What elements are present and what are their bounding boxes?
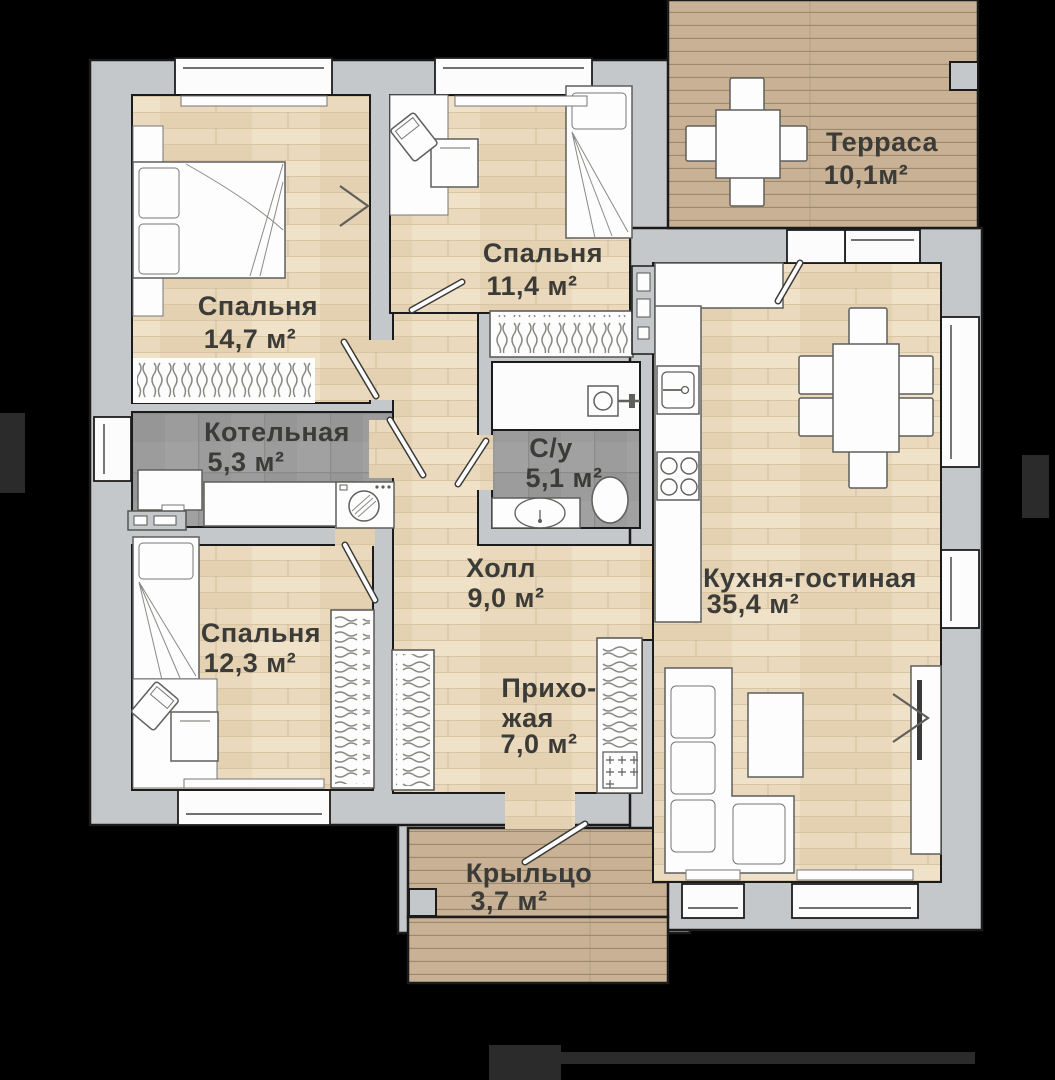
coffee-table-icon (748, 693, 803, 777)
desk-icon (431, 139, 478, 187)
radiator (181, 96, 327, 106)
window (682, 884, 744, 918)
room-area: 35,4 м² (707, 589, 800, 619)
room-name: Спальня (201, 618, 321, 648)
stove-icon (657, 452, 699, 500)
desk-icon (171, 712, 218, 761)
wardrobe-icon (331, 610, 374, 788)
radiator (455, 96, 587, 106)
terrace-deck (668, 0, 978, 228)
radiator (184, 779, 324, 788)
double-bed-icon (133, 162, 285, 278)
room-terrace (668, 0, 978, 228)
radiator (797, 870, 913, 880)
room-name: Спальня (483, 238, 603, 268)
counter (204, 482, 356, 526)
wardrobe-icon (490, 311, 633, 357)
floor-plan: Терраса 10,1м² Спальня 14,7 м² Спальня 1… (0, 0, 1055, 1080)
wardrobe-icon (392, 650, 434, 790)
nightstand-icon (133, 278, 163, 316)
room-area: 11,4 м² (486, 271, 577, 301)
kitchen-counter (655, 263, 783, 308)
room-name: Крыльцо (466, 858, 592, 888)
room-area: 5,3 м² (208, 447, 285, 477)
terrace-column (950, 62, 978, 90)
washing-machine-icon (336, 482, 394, 528)
room-area: 5,1 м² (526, 463, 603, 493)
window (792, 884, 918, 918)
window (941, 317, 979, 467)
wardrobe-icon (597, 638, 642, 793)
left-edge-artifact (0, 413, 25, 493)
sink-icon (492, 498, 580, 528)
room-name: Терраса (826, 127, 939, 157)
room-area: 9,0 м² (468, 583, 545, 613)
radiator (686, 870, 740, 880)
tv-icon (917, 680, 922, 760)
shelf-icon (632, 266, 655, 354)
room-area: 12,3 м² (204, 648, 297, 678)
window (94, 417, 131, 481)
watermark-shape (489, 1045, 561, 1080)
doorway-bedroom-3 (335, 526, 375, 546)
doorway-front (505, 792, 575, 829)
room-area: 7,0 м² (501, 729, 578, 759)
doorway-boiler-room (369, 420, 394, 478)
watermark-bar (560, 1052, 975, 1064)
room-name: Прихо- (501, 673, 596, 703)
room-name: Холл (466, 553, 536, 583)
room-area: 10,1м² (824, 160, 909, 190)
tv-unit-icon (911, 666, 941, 854)
doorway-terrace (787, 230, 845, 263)
boiler-icon (138, 470, 202, 510)
room-name: Спальня (198, 291, 318, 321)
control-panel-icon (128, 511, 186, 530)
floor-plan-page: Терраса 10,1м² Спальня 14,7 м² Спальня 1… (0, 0, 1055, 1080)
window (175, 58, 332, 95)
nightstand-icon (133, 126, 163, 162)
room-name: Котельная (204, 417, 350, 447)
kitchen-sink-icon (657, 366, 699, 414)
room-area: 3,7 м² (471, 886, 548, 916)
single-bed-icon (566, 86, 632, 238)
room-name: С/у (529, 433, 573, 463)
window (845, 230, 920, 263)
room-area: 14,7 м² (204, 324, 297, 354)
single-bed-icon (133, 537, 199, 680)
porch-steps (408, 917, 668, 983)
window (941, 550, 979, 628)
window (178, 790, 330, 825)
wardrobe-icon (133, 358, 315, 403)
shoe-shelf-icon (603, 752, 637, 788)
right-edge-artifact (1022, 455, 1049, 518)
porch-column (409, 889, 436, 916)
